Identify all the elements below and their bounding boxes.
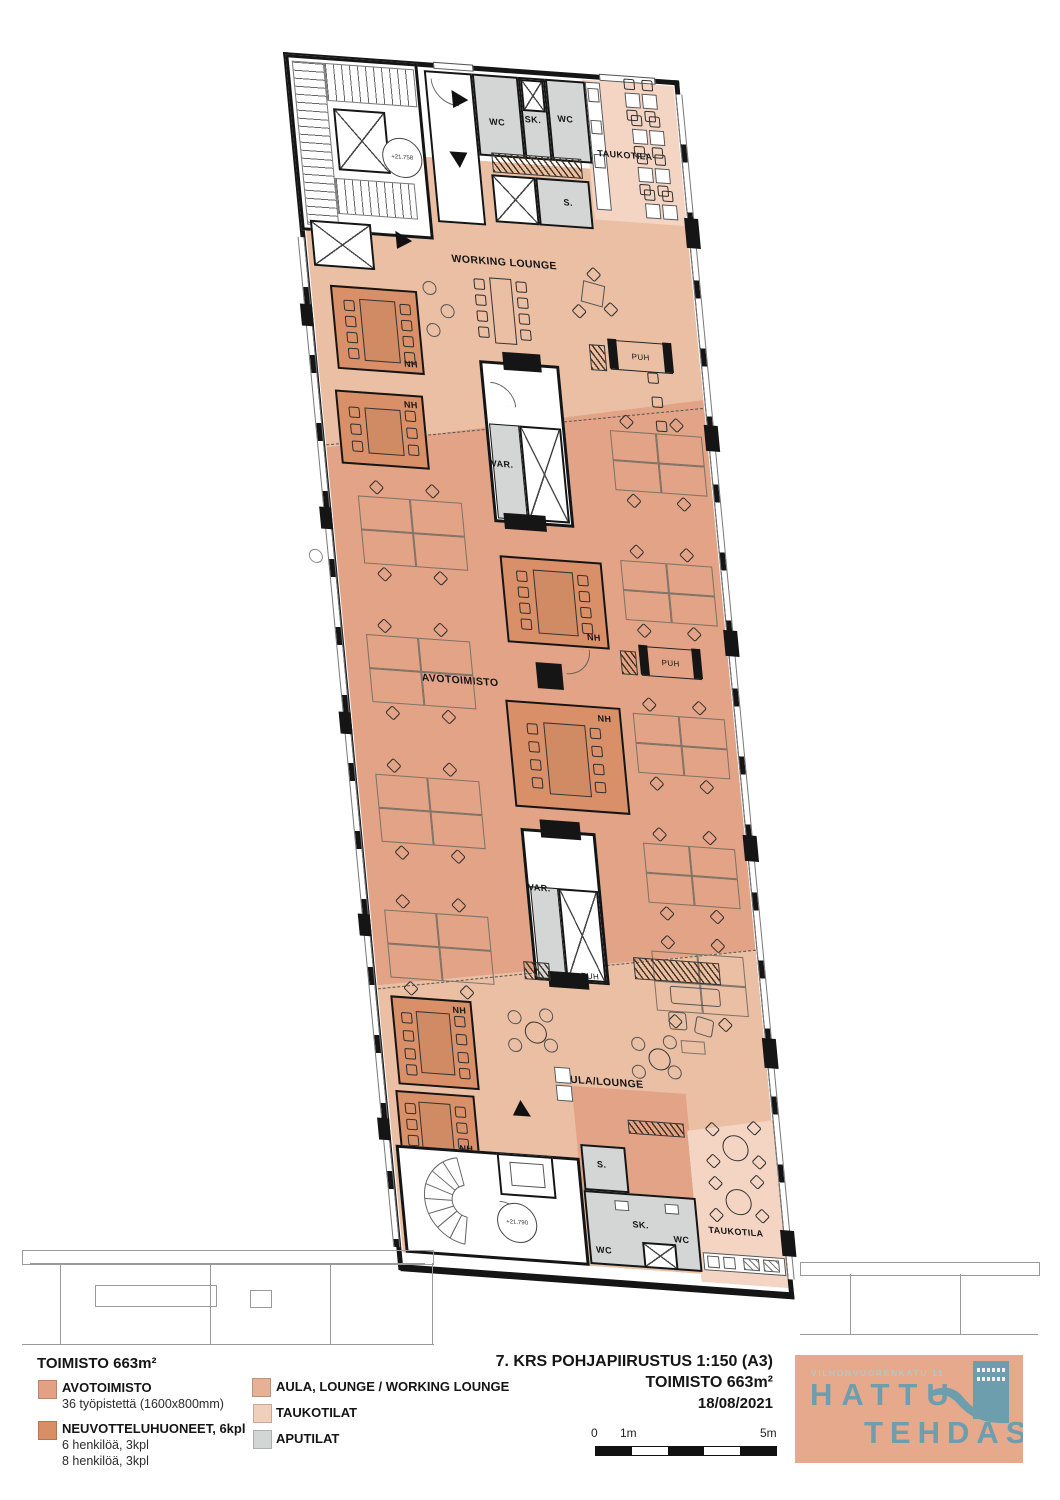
- wall-stub: [503, 513, 547, 532]
- pilaster: [743, 835, 759, 862]
- legend-sub: 36 työpistettä (1600x800mm): [62, 1397, 224, 1411]
- pilaster: [780, 1230, 796, 1257]
- pilaster: [723, 630, 739, 657]
- legend-label: TAUKOTILAT: [276, 1405, 357, 1420]
- pilaster: [704, 425, 720, 452]
- room-label-wc: WC: [596, 1244, 613, 1255]
- desk-cluster: [610, 430, 708, 497]
- legend-label: APUTILAT: [276, 1431, 339, 1446]
- phone-booth-2: PUH: [639, 646, 702, 680]
- room-nh-3: NH: [500, 555, 610, 649]
- room-nh-5: NH: [390, 995, 479, 1090]
- legend-label: AULA, LOUNGE / WORKING LOUNGE: [276, 1379, 509, 1394]
- shaft: [520, 79, 546, 113]
- planter: [589, 344, 607, 371]
- legend-swatch-aula: [252, 1378, 271, 1397]
- legend-title: TOIMISTO 663m²: [37, 1355, 156, 1372]
- legend-label: AVOTOIMISTO: [62, 1380, 152, 1395]
- room-label-s: S.: [563, 197, 573, 208]
- stair-run: [324, 63, 418, 107]
- scale-five: 5m: [760, 1426, 777, 1440]
- elevator: [519, 426, 570, 524]
- facade-vent-circle: [308, 548, 323, 563]
- desk-cluster: [384, 909, 494, 984]
- desk-cluster: [633, 713, 731, 780]
- drawing-title: 7. KRS POHJAPIIRUSTUS 1:150 (A3): [496, 1353, 773, 1371]
- scale-zero: 0: [591, 1426, 598, 1440]
- drawing-subtitle: TOIMISTO 663m²: [646, 1374, 773, 1392]
- core-1: [479, 360, 574, 528]
- entry-arrow: [451, 90, 469, 109]
- wall-stub: [536, 662, 564, 690]
- desk-cluster: [375, 774, 485, 849]
- room-label-nh: NH: [452, 1005, 467, 1016]
- pilaster: [300, 303, 314, 326]
- room-label-puh: PUH: [631, 352, 650, 362]
- kitchen-appliance: [587, 88, 599, 103]
- phone-booth-1: PUH: [608, 340, 673, 374]
- wall-stub: [539, 819, 581, 840]
- room-label-nh: NH: [597, 713, 612, 724]
- kitchen-appliance: [590, 120, 602, 135]
- desk-cluster: [366, 634, 476, 709]
- desk-cluster: [643, 843, 741, 910]
- legend-label: NEUVOTTELUHUONEET, 6kpl: [62, 1421, 245, 1436]
- room-label-wc: WC: [557, 113, 574, 124]
- building-plan: +21.758 WC SK. WC TAUKOTILA: [283, 52, 795, 1301]
- legend-sub: 6 henkilöä, 3kpl: [62, 1438, 149, 1452]
- room-label-var: VAR.: [528, 882, 551, 894]
- pilaster: [684, 218, 701, 249]
- room-label-nh: NH: [404, 399, 419, 410]
- scale-one: 1m: [620, 1426, 637, 1440]
- scale-bar-graphic: [595, 1446, 777, 1456]
- elevator: [497, 1153, 557, 1199]
- legend-swatch-taukotilat: [253, 1404, 272, 1423]
- room-label-sk: SK.: [524, 114, 541, 125]
- desk-cluster: [620, 560, 718, 627]
- legend-sub: 8 henkilöä, 3kpl: [62, 1454, 149, 1468]
- wc-block-bottom: WC SK. WC: [584, 1190, 703, 1272]
- exit-arrow: [511, 1099, 531, 1116]
- legend-swatch-aputilat: [253, 1430, 272, 1449]
- entry-arrow: [449, 151, 469, 168]
- desk-cluster: [358, 495, 468, 570]
- room-label-nh: NH: [586, 632, 601, 643]
- stair-run: [335, 178, 418, 220]
- pilaster: [358, 913, 372, 936]
- exit-arrow: [395, 231, 413, 250]
- room-label-wc: WC: [489, 116, 506, 127]
- room-label-puh: PUH: [581, 971, 600, 981]
- room-label-s: S.: [597, 1159, 607, 1170]
- level-value: +21.790: [506, 1219, 528, 1227]
- stairwell-bottom: [396, 1145, 590, 1266]
- planter: [620, 650, 638, 675]
- hattutehdas-logo: VILHONVUORENKATU 11 HATTU TEHDAS: [795, 1355, 1023, 1463]
- floor-plan-sheet: +21.758 WC SK. WC TAUKOTILA: [0, 0, 1060, 1500]
- factory-building-icon: [929, 1361, 1015, 1441]
- stair-landing: [333, 108, 391, 174]
- shaft: [491, 174, 540, 225]
- room-nh-1: NH: [330, 285, 425, 375]
- legend-swatch-avotoimisto: [38, 1380, 57, 1399]
- spiral-stair: [402, 1151, 487, 1254]
- level-value: +21.758: [391, 154, 413, 162]
- pilaster: [339, 711, 353, 734]
- room-label-puh: PUH: [661, 658, 680, 668]
- legend-swatch-neuvottelu: [38, 1421, 57, 1440]
- elevator: [310, 220, 375, 270]
- elevator: [558, 888, 607, 983]
- shaft: [642, 1242, 678, 1270]
- bench: [523, 961, 551, 981]
- room-nh-4: NH: [505, 700, 630, 815]
- room-nh-2: NH: [335, 389, 430, 469]
- wall-stub: [502, 352, 542, 373]
- room-label-sk: SK.: [632, 1219, 649, 1230]
- pilaster: [319, 506, 333, 529]
- room-label-nh: NH: [404, 359, 419, 370]
- pilaster: [377, 1117, 391, 1140]
- pilaster: [762, 1038, 779, 1069]
- drawing-date: 18/08/2021: [698, 1395, 773, 1412]
- room-label-var: VAR.: [490, 458, 513, 470]
